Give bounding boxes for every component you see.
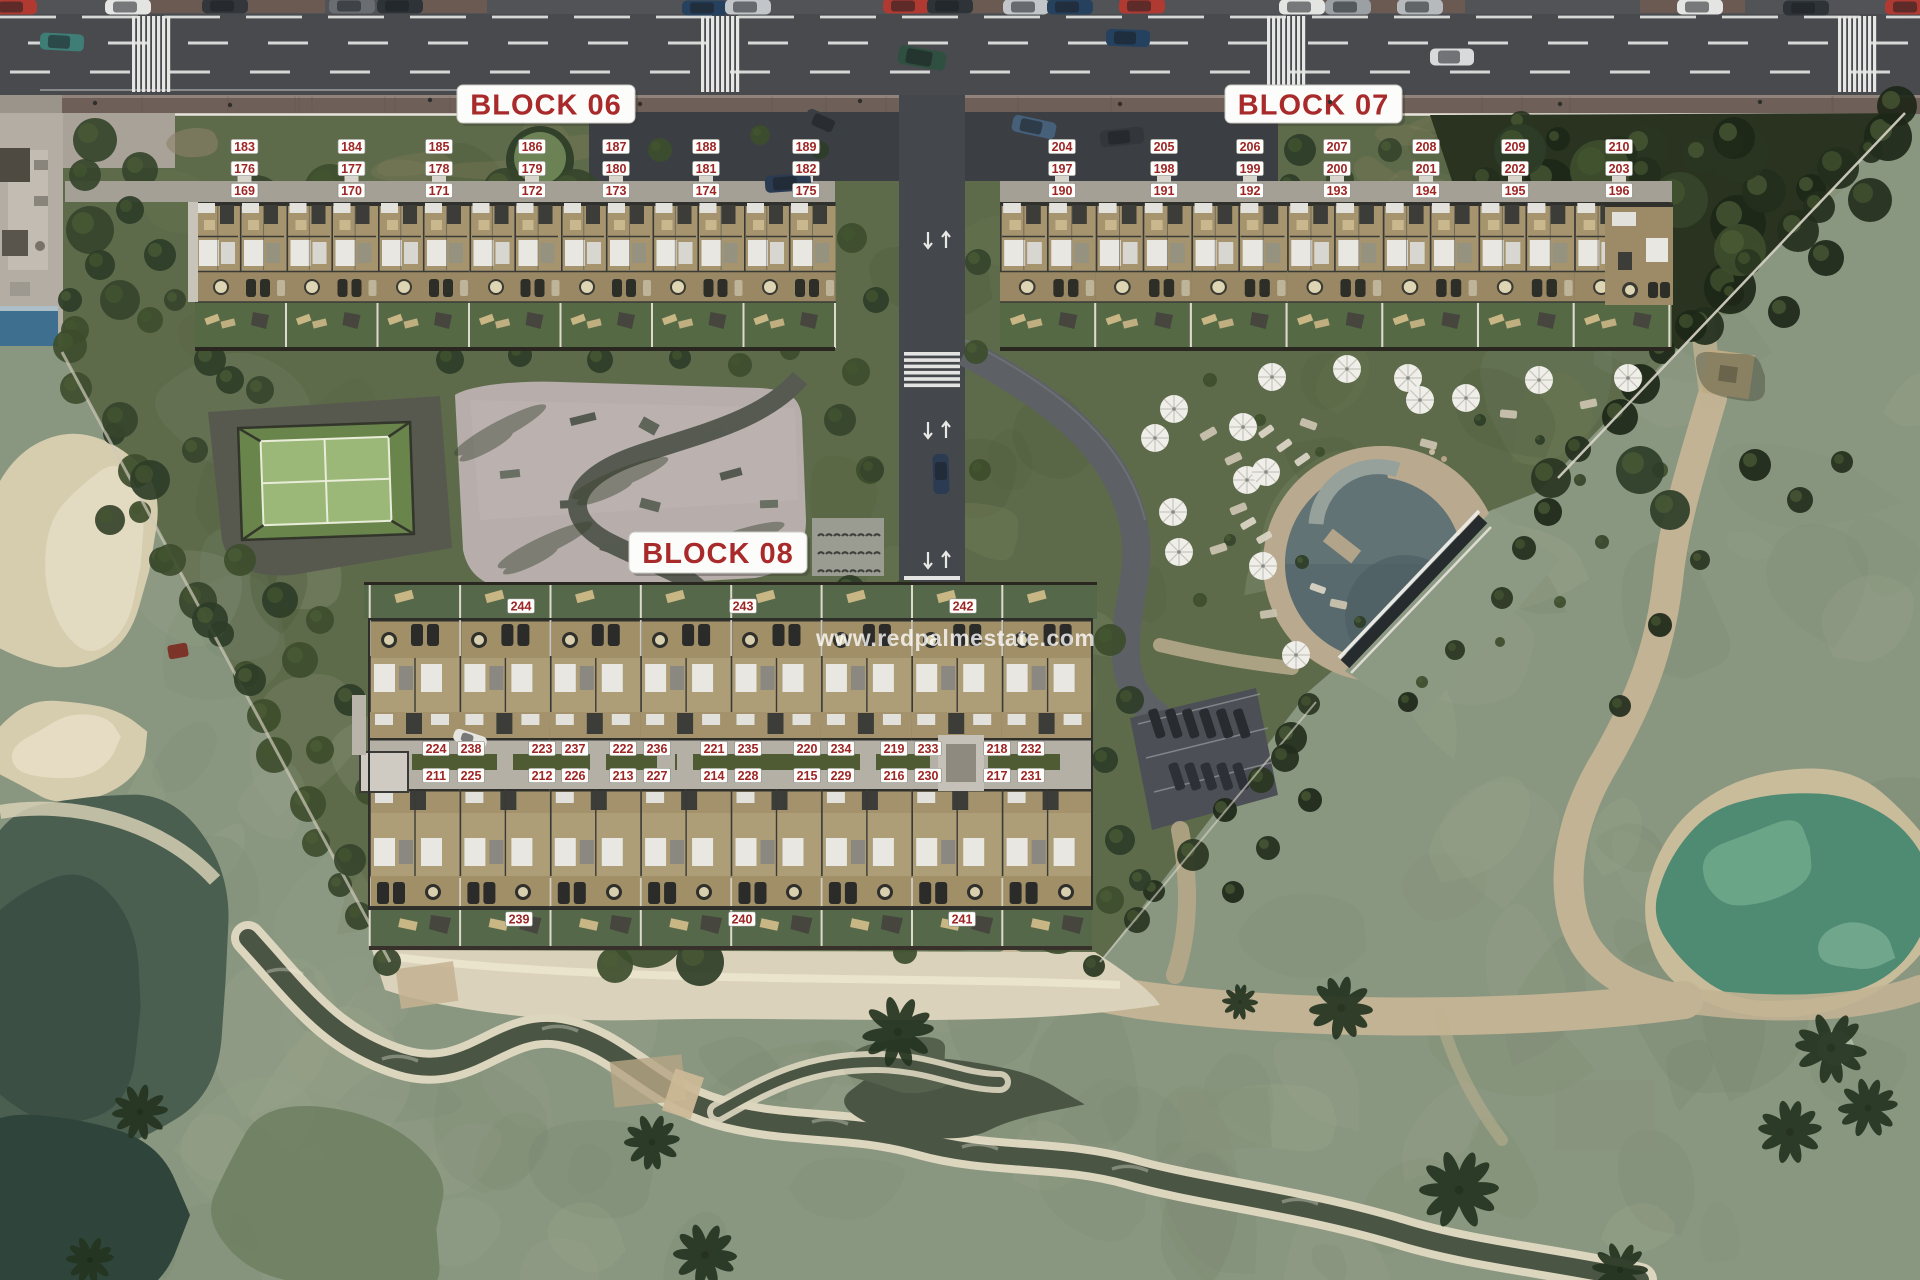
svg-text:225: 225	[461, 769, 482, 783]
svg-text:230: 230	[918, 769, 939, 783]
svg-text:235: 235	[738, 742, 759, 756]
svg-text:232: 232	[1021, 742, 1042, 756]
svg-text:237: 237	[565, 742, 586, 756]
svg-text:215: 215	[797, 769, 818, 783]
svg-text:231: 231	[1021, 769, 1042, 783]
svg-text:170: 170	[341, 184, 362, 198]
svg-text:196: 196	[1609, 184, 1630, 198]
svg-text:203: 203	[1609, 162, 1630, 176]
svg-text:219: 219	[884, 742, 905, 756]
svg-text:176: 176	[234, 162, 255, 176]
svg-text:239: 239	[509, 912, 530, 926]
svg-text:195: 195	[1505, 184, 1526, 198]
svg-text:175: 175	[796, 184, 817, 198]
svg-text:www.redpalmestate.com: www.redpalmestate.com	[815, 625, 1095, 651]
svg-text:216: 216	[884, 769, 905, 783]
svg-text:198: 198	[1154, 162, 1175, 176]
svg-text:212: 212	[532, 769, 553, 783]
svg-text:183: 183	[234, 140, 255, 154]
svg-text:223: 223	[532, 742, 553, 756]
svg-text:192: 192	[1240, 184, 1261, 198]
svg-text:214: 214	[704, 769, 725, 783]
svg-text:180: 180	[606, 162, 627, 176]
svg-text:221: 221	[704, 742, 725, 756]
svg-text:179: 179	[522, 162, 543, 176]
svg-text:172: 172	[522, 184, 543, 198]
svg-text:229: 229	[831, 769, 852, 783]
svg-text:210: 210	[1609, 140, 1630, 154]
svg-text:BLOCK 06: BLOCK 06	[470, 89, 621, 121]
svg-text:178: 178	[429, 162, 450, 176]
svg-text:222: 222	[613, 742, 634, 756]
svg-text:204: 204	[1052, 140, 1073, 154]
svg-text:169: 169	[234, 184, 255, 198]
svg-text:BLOCK 07: BLOCK 07	[1238, 89, 1389, 121]
svg-text:202: 202	[1505, 162, 1526, 176]
svg-text:243: 243	[733, 599, 754, 613]
svg-text:187: 187	[606, 140, 627, 154]
svg-text:193: 193	[1327, 184, 1348, 198]
svg-text:227: 227	[647, 769, 668, 783]
svg-text:217: 217	[987, 769, 1008, 783]
svg-text:186: 186	[522, 140, 543, 154]
svg-text:171: 171	[429, 184, 450, 198]
svg-text:181: 181	[696, 162, 717, 176]
svg-text:197: 197	[1052, 162, 1073, 176]
svg-text:BLOCK 08: BLOCK 08	[642, 538, 793, 570]
svg-text:220: 220	[797, 742, 818, 756]
svg-text:218: 218	[987, 742, 1008, 756]
svg-text:233: 233	[918, 742, 939, 756]
svg-text:174: 174	[696, 184, 717, 198]
svg-text:185: 185	[429, 140, 450, 154]
svg-text:206: 206	[1240, 140, 1261, 154]
svg-text:226: 226	[565, 769, 586, 783]
svg-text:191: 191	[1154, 184, 1175, 198]
svg-text:211: 211	[426, 769, 446, 783]
svg-text:236: 236	[647, 742, 668, 756]
svg-text:173: 173	[606, 184, 627, 198]
svg-text:190: 190	[1052, 184, 1073, 198]
svg-text:205: 205	[1154, 140, 1175, 154]
svg-text:182: 182	[796, 162, 817, 176]
svg-text:184: 184	[341, 140, 362, 154]
svg-text:241: 241	[952, 912, 973, 926]
svg-text:207: 207	[1327, 140, 1348, 154]
svg-text:238: 238	[461, 742, 482, 756]
svg-text:194: 194	[1416, 184, 1437, 198]
svg-text:200: 200	[1327, 162, 1348, 176]
svg-text:213: 213	[613, 769, 634, 783]
svg-text:189: 189	[796, 140, 817, 154]
svg-text:208: 208	[1416, 140, 1437, 154]
svg-text:224: 224	[426, 742, 447, 756]
svg-text:228: 228	[738, 769, 759, 783]
svg-text:234: 234	[831, 742, 852, 756]
svg-text:201: 201	[1416, 162, 1437, 176]
svg-text:177: 177	[341, 162, 362, 176]
svg-text:242: 242	[953, 599, 974, 613]
svg-text:209: 209	[1505, 140, 1526, 154]
svg-text:240: 240	[732, 912, 753, 926]
svg-text:188: 188	[696, 140, 717, 154]
svg-text:199: 199	[1240, 162, 1261, 176]
svg-text:244: 244	[511, 599, 532, 613]
